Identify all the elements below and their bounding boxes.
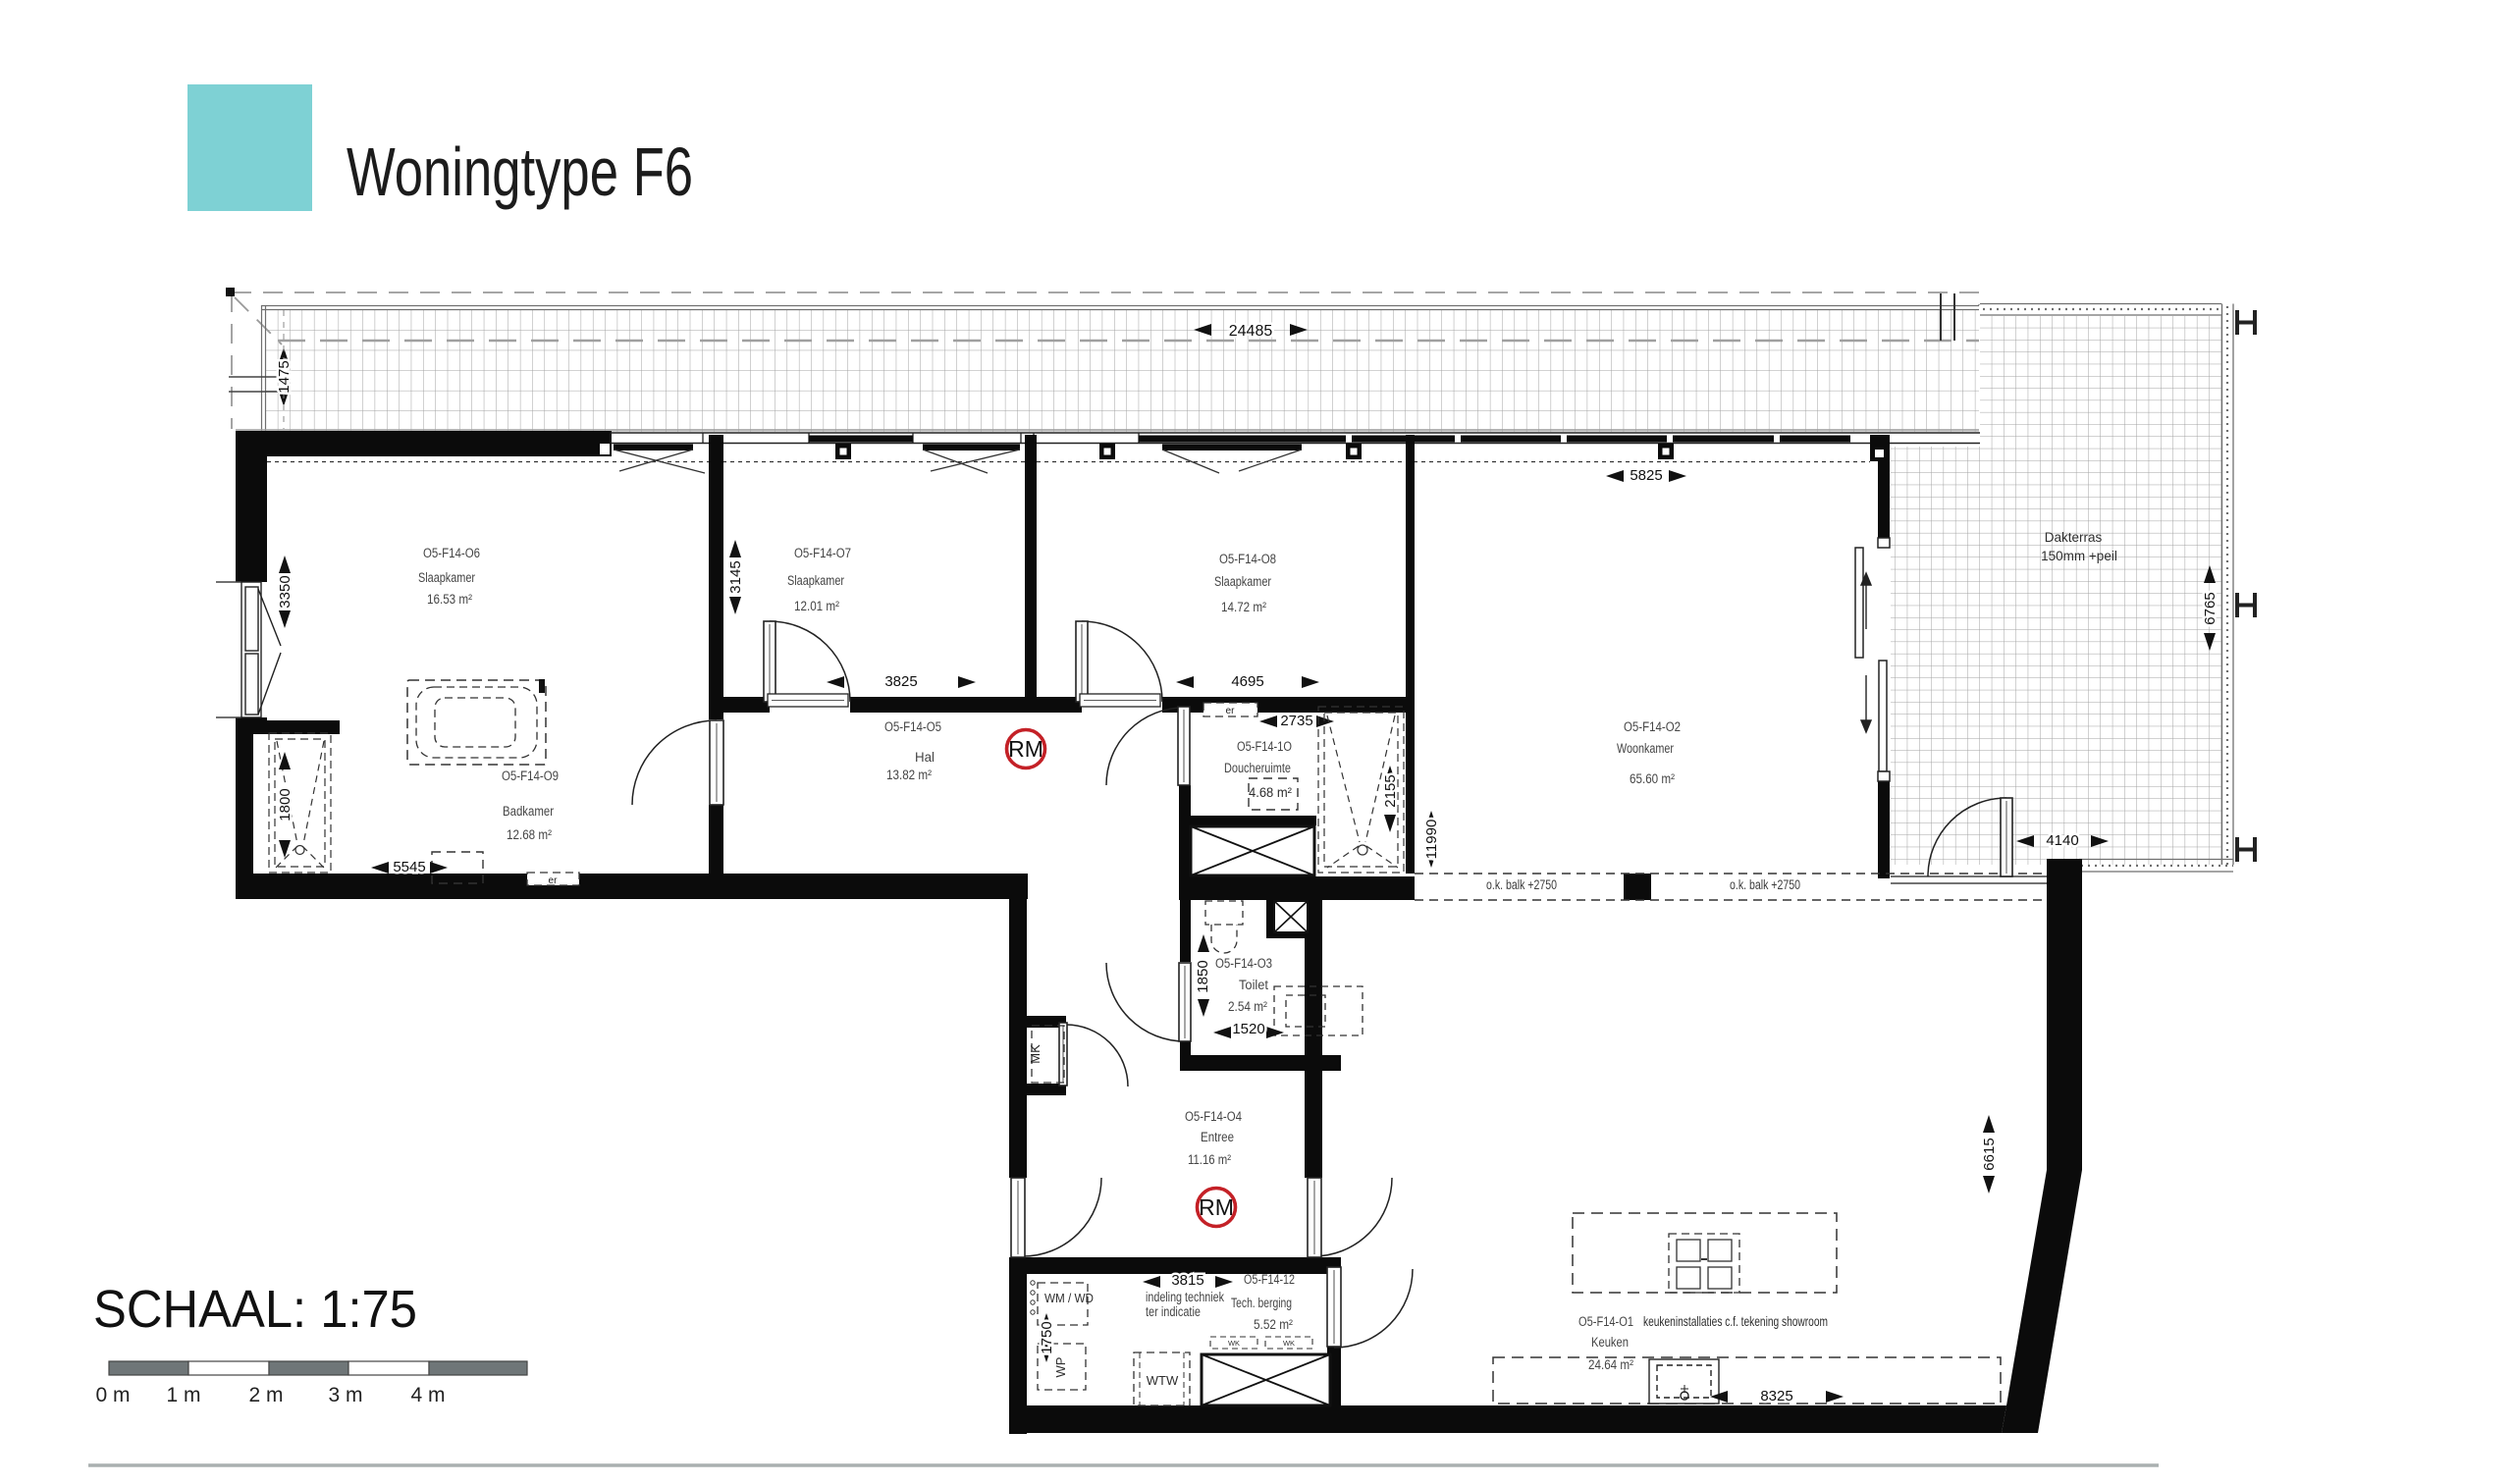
svg-text:Toilet: Toilet bbox=[1239, 978, 1268, 992]
svg-text:Dakterras: Dakterras bbox=[2045, 530, 2103, 545]
svg-text:O5-F14-O6: O5-F14-O6 bbox=[423, 546, 480, 560]
svg-text:6615: 6615 bbox=[1981, 1138, 1998, 1170]
svg-text:RM: RM bbox=[1008, 736, 1043, 762]
svg-text:WTW: WTW bbox=[1147, 1373, 1179, 1388]
svg-text:5825: 5825 bbox=[1630, 467, 1662, 484]
svg-text:O5-F14-O5: O5-F14-O5 bbox=[884, 719, 941, 734]
svg-text:65.60 m²: 65.60 m² bbox=[1630, 771, 1675, 786]
svg-text:MK: MK bbox=[1028, 1044, 1043, 1064]
svg-text:Tech. berging: Tech. berging bbox=[1231, 1296, 1292, 1310]
svg-text:Woningtype F6: Woningtype F6 bbox=[347, 133, 693, 210]
svg-text:2155: 2155 bbox=[1382, 774, 1399, 807]
svg-text:11.16 m²: 11.16 m² bbox=[1188, 1152, 1231, 1167]
svg-text:o.k. balk +2750: o.k. balk +2750 bbox=[1730, 877, 1800, 892]
svg-text:RM: RM bbox=[1199, 1194, 1234, 1220]
svg-text:Entree: Entree bbox=[1201, 1130, 1234, 1144]
svg-text:Slaapkamer: Slaapkamer bbox=[787, 573, 844, 588]
svg-text:5.52 m²: 5.52 m² bbox=[1254, 1317, 1293, 1332]
svg-text:Hal: Hal bbox=[915, 750, 935, 765]
svg-text:o.k. balk +2750: o.k. balk +2750 bbox=[1486, 877, 1557, 892]
svg-text:0 m: 0 m bbox=[95, 1384, 130, 1406]
svg-text:2735: 2735 bbox=[1280, 713, 1312, 729]
svg-text:4695: 4695 bbox=[1231, 673, 1263, 690]
svg-text:WP: WP bbox=[1053, 1357, 1068, 1378]
svg-text:WM / WD: WM / WD bbox=[1044, 1291, 1094, 1305]
svg-text:3 m: 3 m bbox=[328, 1384, 362, 1406]
svg-text:12.68 m²: 12.68 m² bbox=[507, 827, 552, 842]
svg-text:indeling techniek: indeling techniek bbox=[1146, 1290, 1224, 1304]
svg-text:Doucheruimte: Doucheruimte bbox=[1224, 761, 1291, 775]
svg-text:Badkamer: Badkamer bbox=[503, 804, 554, 819]
svg-text:150mm +peil: 150mm +peil bbox=[2041, 549, 2117, 563]
svg-text:24.64 m²: 24.64 m² bbox=[1588, 1357, 1633, 1372]
svg-text:SCHAAL: 1:75: SCHAAL: 1:75 bbox=[93, 1280, 417, 1339]
svg-text:O5-F14-O3: O5-F14-O3 bbox=[1215, 956, 1272, 971]
svg-text:O5-F14-O8: O5-F14-O8 bbox=[1219, 552, 1276, 566]
svg-text:2 m: 2 m bbox=[248, 1384, 283, 1406]
svg-text:O5-F14-12: O5-F14-12 bbox=[1244, 1272, 1295, 1287]
svg-text:2.54 m²: 2.54 m² bbox=[1228, 999, 1267, 1014]
svg-text:O5-F14-O7: O5-F14-O7 bbox=[794, 546, 851, 560]
svg-text:6765: 6765 bbox=[2202, 592, 2219, 624]
svg-text:3825: 3825 bbox=[884, 673, 917, 690]
svg-text:Keuken: Keuken bbox=[1591, 1335, 1629, 1350]
svg-text:8325: 8325 bbox=[1760, 1388, 1792, 1404]
svg-text:ter indicatie: ter indicatie bbox=[1146, 1304, 1201, 1319]
svg-text:keukeninstallaties c.f. tekeni: keukeninstallaties c.f. tekening showroo… bbox=[1643, 1313, 1828, 1329]
svg-text:1850: 1850 bbox=[1195, 960, 1211, 992]
svg-text:1 m: 1 m bbox=[166, 1384, 200, 1406]
svg-text:12.01 m²: 12.01 m² bbox=[794, 599, 839, 613]
svg-text:O5-F14-O4: O5-F14-O4 bbox=[1185, 1109, 1242, 1124]
svg-text:Slaapkamer: Slaapkamer bbox=[418, 570, 475, 585]
svg-text:O5-F14-O2: O5-F14-O2 bbox=[1624, 719, 1681, 734]
svg-text:24485: 24485 bbox=[1229, 323, 1273, 340]
svg-text:WK: WK bbox=[1228, 1339, 1240, 1348]
svg-text:5545: 5545 bbox=[393, 859, 425, 875]
svg-text:O5-F14-O9: O5-F14-O9 bbox=[502, 768, 559, 783]
svg-text:3145: 3145 bbox=[727, 560, 744, 593]
svg-text:4 m: 4 m bbox=[410, 1384, 445, 1406]
svg-text:1800: 1800 bbox=[277, 788, 294, 821]
svg-text:1750: 1750 bbox=[1039, 1321, 1055, 1353]
svg-text:4.68 m²: 4.68 m² bbox=[1249, 784, 1292, 800]
svg-text:11990: 11990 bbox=[1423, 820, 1440, 860]
svg-text:4140: 4140 bbox=[2046, 832, 2078, 849]
svg-text:13.82 m²: 13.82 m² bbox=[886, 768, 932, 782]
svg-text:14.72 m²: 14.72 m² bbox=[1221, 600, 1266, 614]
svg-text:3815: 3815 bbox=[1171, 1272, 1203, 1289]
svg-text:O5-F14-1O: O5-F14-1O bbox=[1237, 739, 1292, 754]
svg-text:er: er bbox=[1226, 706, 1236, 716]
svg-text:1475: 1475 bbox=[276, 360, 293, 393]
svg-text:O5-F14-O1: O5-F14-O1 bbox=[1578, 1314, 1633, 1329]
svg-text:Woonkamer: Woonkamer bbox=[1617, 741, 1674, 756]
svg-text:1520: 1520 bbox=[1232, 1021, 1264, 1037]
svg-text:er: er bbox=[549, 875, 559, 886]
svg-text:WK: WK bbox=[1283, 1339, 1295, 1348]
svg-text:16.53 m²: 16.53 m² bbox=[427, 592, 472, 607]
svg-text:3350: 3350 bbox=[277, 575, 294, 608]
svg-text:Slaapkamer: Slaapkamer bbox=[1214, 574, 1271, 589]
